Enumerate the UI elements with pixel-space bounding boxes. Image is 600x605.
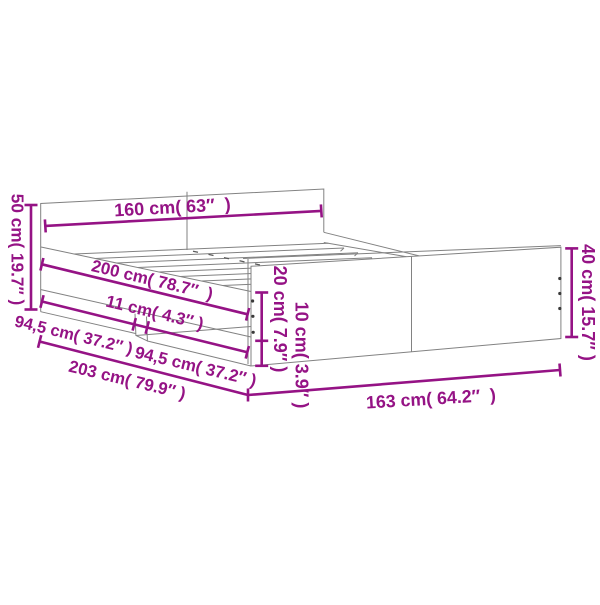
svg-text:50 cm( 19.7″ ): 50 cm( 19.7″ ): [7, 194, 27, 305]
svg-text:40 cm( 15.7″ ): 40 cm( 15.7″ ): [578, 244, 598, 361]
svg-text:20 cm( 7.9″ ): 20 cm( 7.9″ ): [270, 266, 290, 373]
svg-text:10 cm( 3.9″ ): 10 cm( 3.9″ ): [291, 302, 311, 409]
